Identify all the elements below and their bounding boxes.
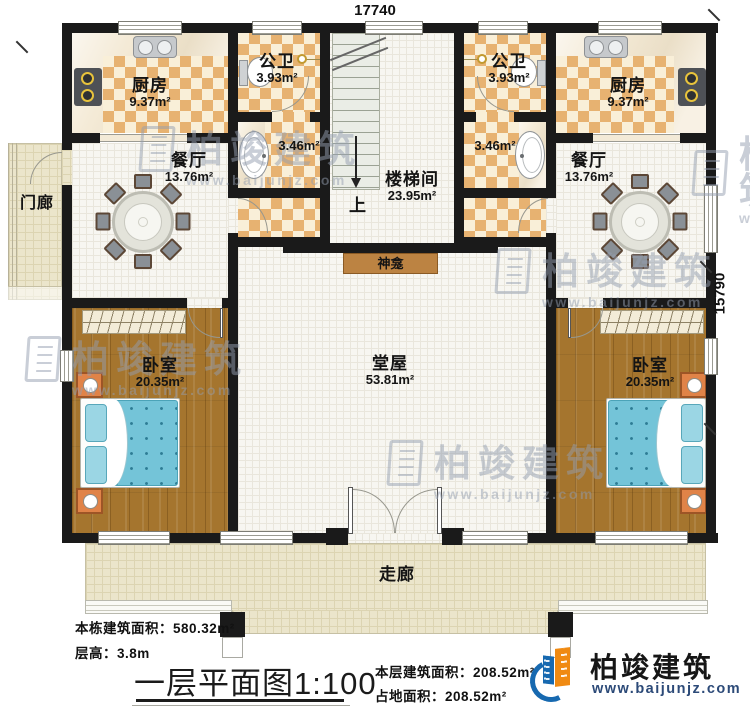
window xyxy=(462,531,528,545)
window xyxy=(118,21,182,35)
room-label-corridor: 走廊 xyxy=(355,565,439,584)
pillow-icon xyxy=(681,446,703,484)
site-area-text: 占地面积：208.52m² xyxy=(375,685,507,705)
watermark-url: www.baijunjz.com xyxy=(739,210,750,226)
room-label-pubbath-right: 公卫 3.93m² xyxy=(472,52,546,86)
chair-icon xyxy=(134,254,152,269)
room-label-dining-right: 餐厅 13.76m² xyxy=(539,151,639,185)
wall-bedroom-left-north-a xyxy=(72,298,187,308)
window xyxy=(598,21,662,35)
watermark-logo-icon xyxy=(494,248,531,294)
plan-scale-text: 1:100 xyxy=(294,666,377,701)
window xyxy=(704,338,718,375)
basin-faucet-dot xyxy=(520,154,524,158)
chair-icon xyxy=(673,213,688,231)
building-area-text: 本栋建筑面积：580.32m² xyxy=(75,617,235,637)
watermark-name: 柏竣建筑 xyxy=(434,445,610,482)
watermark-logo-icon xyxy=(24,336,61,382)
watermark: 柏竣建筑 www.baijunjz.com xyxy=(388,440,610,502)
burner-icon xyxy=(685,89,698,102)
table-center-ring xyxy=(635,217,645,227)
sink-basin-icon xyxy=(157,40,172,55)
chair-icon xyxy=(176,213,191,231)
wardrobe-left xyxy=(82,310,186,334)
dimension-top: 17740 xyxy=(330,2,420,19)
pillow-icon xyxy=(85,446,107,484)
brand-logo-icon xyxy=(528,644,588,706)
pillow-icon xyxy=(85,404,107,442)
room-label-wash-right: 3.46m² xyxy=(458,139,532,154)
burner-icon xyxy=(685,72,698,85)
plan-title: 一层平面图1:100 xyxy=(134,658,377,703)
bedroom-left-door-opening xyxy=(187,298,222,308)
wall-kitchen-left-south-a xyxy=(72,133,100,143)
plan-title-text: 一层平面图 xyxy=(134,666,294,701)
wall-nook-right-south xyxy=(454,237,556,247)
door-stub-left xyxy=(326,528,348,545)
chair-icon xyxy=(593,213,608,231)
room-label-stairwell: 楼梯间 23.95m² xyxy=(362,170,462,204)
wall-pubbath-left-south-a xyxy=(238,112,272,122)
stove-icon xyxy=(678,68,706,106)
column-base xyxy=(222,637,243,658)
wall-pubbath-right-south-a xyxy=(464,112,476,122)
wall-pubbath-right-south-b xyxy=(514,112,546,122)
window xyxy=(252,21,302,35)
watermark: 柏竣建筑 www.baijunjz.com xyxy=(693,136,750,226)
table-center-ring xyxy=(138,217,148,227)
porch-door-opening xyxy=(62,150,72,185)
watermark-url: www.baijunjz.com xyxy=(434,486,610,502)
kitchen-sink-icon xyxy=(133,36,177,58)
brand-url: www.baijunjz.com xyxy=(592,681,741,697)
nightstand-icon xyxy=(680,488,707,514)
brand-name: 柏竣建筑 xyxy=(590,646,714,686)
window xyxy=(220,531,293,545)
corridor-steps-left xyxy=(85,600,232,614)
wall-nook-left-south xyxy=(228,237,330,247)
window xyxy=(478,21,528,35)
floor-plan-canvas: 神龛 xyxy=(0,0,750,715)
dimension-tick xyxy=(16,41,29,54)
watermark-logo-icon xyxy=(691,150,728,196)
corridor-column-right xyxy=(548,612,573,637)
logo-building-orange xyxy=(555,647,570,687)
wall-pubbath-left-south-b xyxy=(310,112,330,122)
wardrobe-right xyxy=(600,310,704,334)
dimension-right: 15790 xyxy=(712,262,729,326)
shrine-shelf: 神龛 xyxy=(343,253,438,274)
watermark-url: www.baijunjz.com xyxy=(542,294,718,310)
room-label-dining-left: 餐厅 13.76m² xyxy=(139,151,239,185)
logo-building-blue xyxy=(543,655,554,684)
window xyxy=(98,531,170,545)
room-label-bedroom-right: 卧室 20.35m² xyxy=(600,356,700,390)
watermark-name: 柏竣建筑 xyxy=(542,253,718,290)
entry-door-opening xyxy=(348,533,442,543)
sink-basin-icon xyxy=(608,40,623,55)
room-label-kitchen-left: 厨房 9.37m² xyxy=(105,76,195,110)
room-label-bedroom-left: 卧室 20.35m² xyxy=(110,356,210,390)
kitchen-sink-icon xyxy=(584,36,628,58)
wall-bedroom-left-north-b xyxy=(222,298,238,308)
room-label-kitchen-right: 厨房 9.37m² xyxy=(583,76,673,110)
stair-up-label: 上 xyxy=(346,196,370,215)
pillow-icon xyxy=(681,404,703,442)
watermark-logo-icon xyxy=(386,440,423,486)
nightstand-icon xyxy=(76,488,103,514)
pubbath-left-door-opening xyxy=(272,112,310,122)
kitchen-right-passage xyxy=(593,134,680,142)
room-label-porch: 门廊 xyxy=(12,195,62,213)
wall-wash-right-south xyxy=(454,188,556,198)
porch-step-band xyxy=(8,286,62,300)
title-underline-light xyxy=(132,705,350,706)
stove-icon xyxy=(74,68,102,106)
pubbath-right-door-opening xyxy=(476,112,514,122)
watermark: 柏竣建筑 www.baijunjz.com xyxy=(496,248,718,310)
room-label-hall: 堂屋 53.81m² xyxy=(340,354,440,388)
bedroom-left-door-leaf xyxy=(220,308,223,338)
door-stub-right xyxy=(442,528,464,545)
shrine-label: 神龛 xyxy=(377,256,403,271)
corridor-steps-right xyxy=(558,600,708,614)
sink-basin-icon xyxy=(138,40,153,55)
burner-icon xyxy=(81,72,94,85)
dimension-tick xyxy=(708,9,721,22)
sink-basin-icon xyxy=(589,40,604,55)
watermark-name: 柏竣建筑 xyxy=(739,136,750,210)
room-label-pubbath-left: 公卫 3.93m² xyxy=(240,52,314,86)
wall-kitchen-right-south-a xyxy=(556,133,593,143)
wall-exterior-left-upper xyxy=(62,23,72,150)
nightstand-knob xyxy=(687,494,702,509)
corridor-floor-extension xyxy=(232,610,558,634)
window xyxy=(365,21,423,35)
wall-wash-left-south xyxy=(228,188,330,198)
nightstand-knob xyxy=(83,494,98,509)
chair-icon xyxy=(96,213,111,231)
burner-icon xyxy=(81,89,94,102)
window xyxy=(595,531,688,545)
porch-steps xyxy=(8,143,20,300)
floor-area-text: 本层建筑面积：208.52m² xyxy=(375,661,535,681)
wash-left-door-opening xyxy=(228,198,238,233)
room-label-wash-left: 3.46m² xyxy=(262,139,336,154)
title-underline xyxy=(136,699,344,702)
